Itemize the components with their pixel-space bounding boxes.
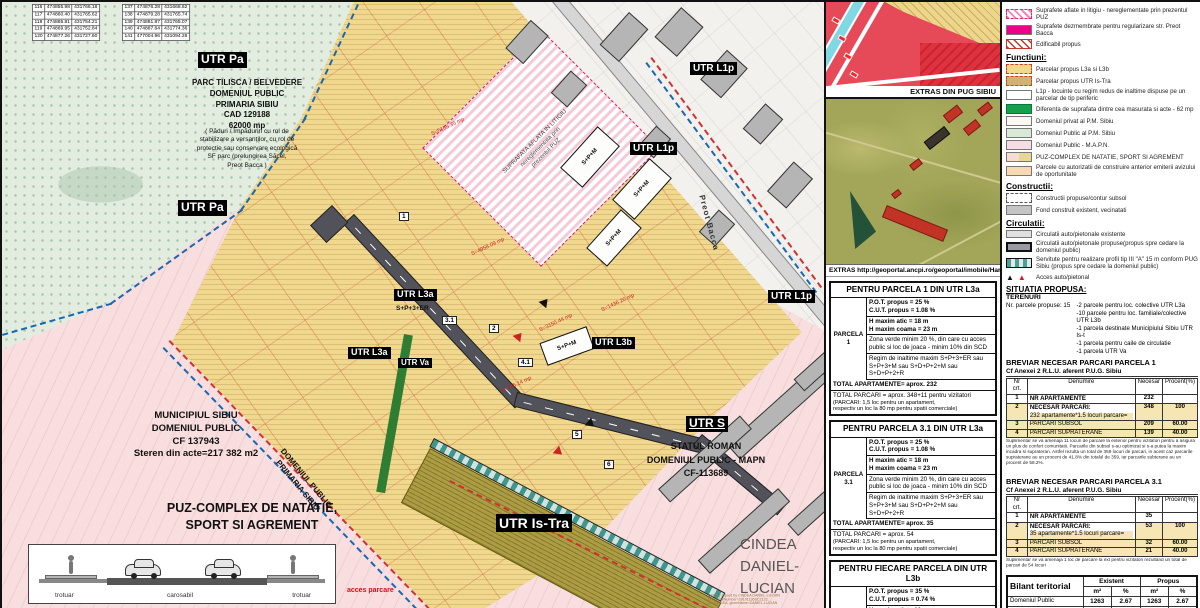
breviar-subtitle: Cf Anexei 2 R.L.U. aferent P.U.G. Sibiu <box>1006 368 1198 377</box>
breviar-header-row: Nr crt. Denumire Necesar Procent(%) <box>1007 378 1198 394</box>
parcela-id-cell: PARCELA 1 <box>831 298 867 380</box>
legend-swatch <box>1006 193 1032 203</box>
legend-swatch <box>1006 9 1032 19</box>
legend-label: Circulatii auto/pietonale existente <box>1036 231 1125 238</box>
legend-top-group: Suprafete aflate in litigiu - nereglemen… <box>1006 7 1198 49</box>
total-parcari-row: TOTAL PARCARI = aprox. 348+11 pentru viz… <box>831 391 995 415</box>
legend-item: Suprafete aflate in litigiu - nereglemen… <box>1006 7 1198 21</box>
legend-item: Acces auto/pietonal <box>1006 272 1198 282</box>
parcela-table: PENTRU PARCELA 3.1 DIN UTR L3a PARCELA 3… <box>829 420 997 555</box>
breviar-row: 3 PARCARI SUBSOL 209 60.00 <box>1007 421 1198 430</box>
red-roof-building <box>977 102 993 117</box>
pedestrian-icon <box>291 561 295 574</box>
total-apartamente-row: TOTAL APARTAMENTE= aprox. 35 <box>831 519 995 530</box>
legend-item: Parcelar propus L3a si L3b <box>1006 64 1198 74</box>
legend-label: PUZ-COMPLEX DE NATATIE, SPORT SI AGREMEN… <box>1036 154 1184 161</box>
park-note-line: Preot Bacca ) <box>148 162 346 170</box>
legend-item: Domeniul privat al P.M. Sibiu <box>1006 116 1198 126</box>
legend-label: Parcele cu autorizatii de construire ant… <box>1036 164 1198 178</box>
situatia-item: -1 parcela pentru caile de circulatie <box>1076 340 1198 348</box>
circulatii-group: Circulatii auto/pietonale existente Circ… <box>1006 230 1198 282</box>
parcel-number: 4.1 <box>518 358 533 367</box>
breviar-note: Suplimentar se va amenaja 1 loc de parca… <box>1006 558 1198 569</box>
breviar-parc-table: BREVIAR NECESAR PARCARI PARCELA 1 Cf Ane… <box>1006 359 1198 474</box>
breviar-row: 1 NR APARTAMENTE 35 <box>1007 513 1198 523</box>
legend-label: Servitute pentru realizare profil tip II… <box>1036 256 1198 270</box>
legend-item: Servitute pentru realizare profil tip II… <box>1006 256 1198 270</box>
legend-label: Suprafete aflate in litigiu - nereglemen… <box>1036 7 1198 21</box>
aerial-inset-caption: EXTRAS http://geoportal.ancpi.ro/geoport… <box>826 265 1000 277</box>
legend-item: Fond construit existent, vecinatati <box>1006 205 1198 215</box>
parcel-number: 2 <box>489 324 499 333</box>
legend-item: Suprafete dezmembrate pentru regularizar… <box>1006 23 1198 37</box>
breviar-title: BREVIAR NECESAR PARCARI PARCELA 1 <box>1006 359 1198 368</box>
puz-complex-text: PUZ-COMPLEX DE NATATIE,SPORT SI AGREMENT <box>130 500 374 534</box>
breviar-row: 2 NECESAR PARCARI:232 apartamente*1.5 lo… <box>1007 404 1198 421</box>
parcela-table-title: PENTRU PARCELA 1 DIN UTR L3a <box>831 283 995 298</box>
situatia-item: -1 parcela destinate Municipiului Sibiu … <box>1076 325 1198 340</box>
building-label: S+P+M <box>633 180 651 199</box>
pot-cut-row: P.O.T. propus = 25 %C.U.T. propus = 1.08… <box>867 298 995 317</box>
park-note-line: SF parc (prelungirea Săcel, <box>148 153 346 161</box>
legend-swatch <box>1006 104 1032 114</box>
park-title-text: PARC TILISCA / BELVEDEREDOMENIUL PUBLICP… <box>152 78 342 132</box>
red-roof-building <box>943 105 963 124</box>
legend-item: Parcele cu autorizatii de construire ant… <box>1006 164 1198 178</box>
legend-swatch <box>1006 242 1032 252</box>
park-note-line: ( Păduri / Împăduriri cu rol de <box>148 128 346 136</box>
legend-item: Diferenta de suprafata dintre cea masura… <box>1006 104 1198 114</box>
breviar-row: 4 PARCARI SUPRATERANE 139 40.00 <box>1007 429 1198 438</box>
utr-label-chip: UTR Pa <box>178 200 227 216</box>
coord-row: 139474881.87431765.07 <box>122 19 189 26</box>
pug-building <box>849 70 858 78</box>
municipiu-line: MUNICIPIUL SIBIU <box>90 410 302 423</box>
parcela-table: PENTRU FIECARE PARCELA DIN UTR L3b PARCE… <box>829 560 997 608</box>
digital-signature-details: Digitally signed by CINDEA DANIEL-LUCIAN… <box>708 594 816 606</box>
legend-label: Acces auto/pietonal <box>1036 274 1089 281</box>
statul-roman-line: DOMENIUL PUBLIC - MAPN <box>618 454 794 468</box>
legend-swatch <box>1006 25 1032 35</box>
legend-swatch <box>1006 39 1032 49</box>
breviar-tables: BREVIAR NECESAR PARCARI PARCELA 1 Cf Ane… <box>1006 359 1198 571</box>
car-icon <box>205 564 241 576</box>
coord-row: 140474887.64431774.36 <box>122 26 189 33</box>
park-note-text: ( Păduri / Împăduriri cu rol destabiliza… <box>148 128 346 170</box>
legend-swatch <box>1006 230 1032 238</box>
constructii-heading: Constructii: <box>1006 181 1198 191</box>
legend-label: Domeniul privat al P.M. Sibiu <box>1036 118 1113 125</box>
breviar-note: Suplimentar se va amenaja 11 locuri de p… <box>1006 439 1198 466</box>
legend-column: Suprafete aflate in litigiu - nereglemen… <box>1000 2 1200 608</box>
acces-parcare-label: acces parcare <box>347 587 394 594</box>
legend-swatch <box>1006 166 1032 176</box>
parcela-id-cell: PARCELELE 3.2, 4.1, 4.2, 4.3, 5, 6 <box>831 587 867 608</box>
parcel-number: 5 <box>572 430 582 439</box>
coordinate-table-left: 116474855.98431766.18117474860.40431765.… <box>32 4 100 41</box>
coord-row: 120474877.26431727.60 <box>32 33 99 40</box>
functiuni-group: Parcelar propus L3a si L3b Parcelar prop… <box>1006 64 1198 178</box>
signature-detail-line: cn=CINDEA, givenName=DANIEL-LUCIAN <box>708 602 816 606</box>
pot-cut-row: P.O.T. propus = 35 %C.U.T. propus = 0.74… <box>867 587 995 606</box>
legend-label: L1p - locuinte cu regim redus de inaltim… <box>1036 88 1198 102</box>
dark-building <box>924 126 951 150</box>
legend-item: Constructii propuse/contur subsol <box>1006 193 1198 203</box>
situatia-title: SITUATIA PROPUSA: <box>1006 285 1198 294</box>
parcela-table-title: PENTRU PARCELA 3.1 DIN UTR L3a <box>831 422 995 437</box>
road-cross-section-legend: trotuar carosabil trotuar <box>28 544 336 604</box>
park-title-line: CAD 129188 <box>152 110 342 121</box>
breviar-subtitle: Cf Anexei 2 R.L.U. aferent P.U.G. Sibiu <box>1006 487 1198 496</box>
coord-row: 138474879.28431765.74 <box>122 12 189 19</box>
legend-label: Circulatii auto/pietonale propuse(propus… <box>1036 240 1198 254</box>
signature-name-line: CINDEA <box>740 534 799 556</box>
utr-label-chip: UTR L3a <box>348 347 391 359</box>
zoning-map: SUPRAFATA AFLATA IN LITIGIUnereglementat… <box>2 2 824 608</box>
parcel-number: 6 <box>604 460 614 469</box>
coord-row: 137474876.28431668.62 <box>122 4 189 11</box>
parcel-number: 1 <box>399 212 409 221</box>
circulatii-heading: Circulatii: <box>1006 218 1198 228</box>
legend-swatch <box>1006 152 1032 162</box>
situatia-item: -2 parcele pentru loc. colective UTR L3a <box>1076 302 1198 310</box>
sidewalk-left <box>45 575 97 579</box>
legend-swatch <box>1006 64 1032 74</box>
regim-inaltime-label: S+P+3+ER <box>396 305 429 312</box>
tree-cluster <box>850 191 876 249</box>
sidewalk-label: trotuar <box>292 592 311 599</box>
breviar-header-row: Nr crt. Denumire Necesar Procent(%) <box>1007 497 1198 513</box>
sidewalk-label: trotuar <box>55 592 74 599</box>
building-label: S+P+M <box>605 229 623 248</box>
building-label: S+P+M <box>557 340 578 352</box>
sidewalk-right <box>267 575 319 579</box>
red-roof-building <box>909 158 923 171</box>
carriageway <box>107 578 267 585</box>
puz-complex-line: SPORT SI AGREMENT <box>130 517 374 534</box>
park-note-line: protecție sau conservare ecologică <box>148 145 346 153</box>
pot-cut-row: P.O.T. propus = 25 %C.U.T. propus = 1.08… <box>867 438 995 457</box>
situatia-propusa-block: SITUATIA PROPUSA: TERENURI Nr. parcele p… <box>1006 285 1198 355</box>
utr-label-chip: UTR L1p <box>768 290 815 303</box>
red-roof-building <box>963 119 981 136</box>
coord-row: 116474855.98431766.18 <box>32 4 99 11</box>
field-path <box>826 130 1000 190</box>
digital-signature-name: CINDEADANIEL-LUCIAN <box>740 534 799 599</box>
situatia-item: -10 parcele pentru loc. familiale/colect… <box>1076 310 1198 325</box>
utr-label-chip: UTR L1p <box>630 142 677 155</box>
inset-and-tables-column: EXTRAS DIN PUG SIBIU EXTRAS http://geopo… <box>824 2 1000 608</box>
legend-label: Domeniul Public - M.A.P.N. <box>1036 142 1109 149</box>
total-parcari-row: TOTAL PARCARI = aprox. 54 (PARCARI: 1,5 … <box>831 530 995 554</box>
coord-row: 118474865.81431754.21 <box>32 19 99 26</box>
height-row: H maxim atic = 18 mH maxim coama = 23 m <box>867 317 995 336</box>
park-title-line: DOMENIUL PUBLIC <box>152 89 342 100</box>
utr-label-chip: UTR L3a <box>394 289 437 301</box>
legend-label: Parcelar propus L3a si L3b <box>1036 66 1109 73</box>
legend-swatch <box>1006 128 1032 138</box>
coord-row: 117474860.40431765.62 <box>32 12 99 19</box>
statul-roman-line: CF-113689 <box>618 467 794 481</box>
green-area-row: Zona verde minim 20 %, din care cu acces… <box>867 475 995 494</box>
legend-swatch <box>1006 76 1032 86</box>
total-apartamente-row: TOTAL APARTAMENTE= aprox. 232 <box>831 380 995 391</box>
field-path <box>895 202 1000 265</box>
legend-item: Parcelar propus UTR Is-Tra <box>1006 76 1198 86</box>
aerial-photo-inset <box>826 99 1000 265</box>
legend-swatch <box>1006 205 1032 215</box>
utr-label-chip: UTR S <box>686 416 728 432</box>
statul-roman-line: STATUL ROMAN <box>618 440 794 454</box>
pug-extract-inset: EXTRAS DIN PUG SIBIU <box>826 2 1000 99</box>
utr-label-chip: UTR Is-Tra <box>496 514 572 532</box>
utr-label-chip: UTR Va <box>398 358 432 368</box>
legend-swatch <box>1006 258 1032 268</box>
breviar-row: 1 NR APARTAMENTE 232 <box>1007 394 1198 404</box>
legend-swatch <box>1006 140 1032 150</box>
long-red-building <box>882 205 948 242</box>
legend-label: Domeniul Public al P.M. Sibiu <box>1036 130 1115 137</box>
breviar-row: 3 PARCARI SUBSOL 32 60.00 <box>1007 539 1198 548</box>
parcela-table: PENTRU PARCELA 1 DIN UTR L3a PARCELA 1 P… <box>829 281 997 416</box>
coord-row: 119474869.95431752.84 <box>32 26 99 33</box>
utr-label-chip: UTR Pa <box>198 52 247 68</box>
legend-item: Domeniul Public - M.A.P.N. <box>1006 140 1198 150</box>
municipiu-line: DOMENIUL PUBLIC <box>90 423 302 436</box>
legend-item: PUZ-COMPLEX DE NATATIE, SPORT SI AGREMEN… <box>1006 152 1198 162</box>
red-roof-building <box>891 189 902 199</box>
situatia-item: -1 parcela UTR Va <box>1076 348 1198 356</box>
legend-item: L1p - locuinte cu regim redus de inaltim… <box>1006 88 1198 102</box>
park-note-line: stabilizare a versanților, cu rol de <box>148 136 346 144</box>
pug-red-zone <box>920 43 1000 87</box>
breviar-row: 4 PARCARI SUPRATERANE 21 40.00 <box>1007 548 1198 557</box>
park-title-line: PARC TILISCA / BELVEDERE <box>152 78 342 89</box>
regim-row: Regim de inaltime maxim S+P+3+ER sauS+P+… <box>867 354 995 380</box>
legend-item: Edificabil propus <box>1006 39 1198 49</box>
puz-plan-sheet: { "map": { "coord_left": [["116","474855… <box>0 0 1200 608</box>
situatia-items: -2 parcele pentru loc. colective UTR L3a… <box>1076 302 1198 355</box>
legend-swatch <box>1006 116 1032 126</box>
legend-swatch <box>1006 272 1032 282</box>
situatia-lead: Nr. parcele propuse: 15 <box>1006 302 1070 355</box>
carriageway-label: carosabil <box>167 592 193 599</box>
coordinate-table-right: 137474876.28431668.62138474879.28431765.… <box>122 4 190 41</box>
bilant-teritorial-block: Bilant teritorial Existent Propus m² % m… <box>1006 575 1198 608</box>
parcela-regulation-tables: PENTRU PARCELA 1 DIN UTR L3a PARCELA 1 P… <box>826 281 1000 608</box>
bilant-title: Bilant teritorial <box>1007 576 1083 597</box>
legend-label: Suprafete dezmembrate pentru regularizar… <box>1036 23 1198 37</box>
bilant-row: Domeniul Public 12632.67 12632.67 <box>1007 597 1197 607</box>
green-area-row: Zona verde minim 20 %, din care cu acces… <box>867 335 995 354</box>
pedestrian-icon <box>69 561 73 574</box>
legend-item: Circulatii auto/pietonale propuse(propus… <box>1006 240 1198 254</box>
legend-item: Circulatii auto/pietonale existente <box>1006 230 1198 238</box>
parcel-number: 3.1 <box>442 316 457 325</box>
utr-label-chip: UTR L3b <box>592 337 635 349</box>
utr-label-chip: UTR L1p <box>690 62 737 75</box>
pug-inset-caption: EXTRAS DIN PUG SIBIU <box>826 86 1000 97</box>
parcela-id-cell: PARCELA 3.1 <box>831 438 867 520</box>
height-row: H maxim atic = 18 mH maxim coama = 23 m <box>867 456 995 475</box>
legend-label: Edificabil propus <box>1036 41 1081 48</box>
coord-row: 141477004.96431094.26 <box>122 33 189 40</box>
statul-roman-text: STATUL ROMANDOMENIUL PUBLIC - MAPNCF-113… <box>618 440 794 481</box>
legend-label: Parcelar propus UTR Is-Tra <box>1036 78 1111 85</box>
park-title-line: PRIMARIA SIBIU <box>152 100 342 111</box>
breviar-title: BREVIAR NECESAR PARCARI PARCELA 3.1 <box>1006 478 1198 487</box>
situatia-subtitle: TERENURI <box>1006 294 1198 301</box>
legend-label: Fond construit existent, vecinatati <box>1036 207 1126 214</box>
building-label: S+P+M <box>581 148 599 167</box>
signature-name-line: DANIEL- <box>740 556 799 578</box>
bilant-header-row: Bilant teritorial Existent Propus <box>1007 576 1197 587</box>
breviar-row: 2 NECESAR PARCARI:35 apartamente*1.5 loc… <box>1007 522 1198 539</box>
legend-label: Diferenta de suprafata dintre cea masura… <box>1036 106 1194 113</box>
car-icon <box>125 564 161 576</box>
regim-row: Regim de inaltime maxim S+P+3+ER sauS+P+… <box>867 493 995 519</box>
constructii-group: Constructii propuse/contur subsol Fond c… <box>1006 193 1198 215</box>
functiuni-heading: Functiuni: <box>1006 52 1198 62</box>
legend-swatch <box>1006 90 1032 100</box>
legend-item: Domeniul Public al P.M. Sibiu <box>1006 128 1198 138</box>
legend-label: Constructii propuse/contur subsol <box>1036 195 1126 202</box>
parcela-table-title: PENTRU FIECARE PARCELA DIN UTR L3b <box>831 562 995 588</box>
breviar-parc-table: BREVIAR NECESAR PARCARI PARCELA 3.1 Cf A… <box>1006 478 1198 572</box>
